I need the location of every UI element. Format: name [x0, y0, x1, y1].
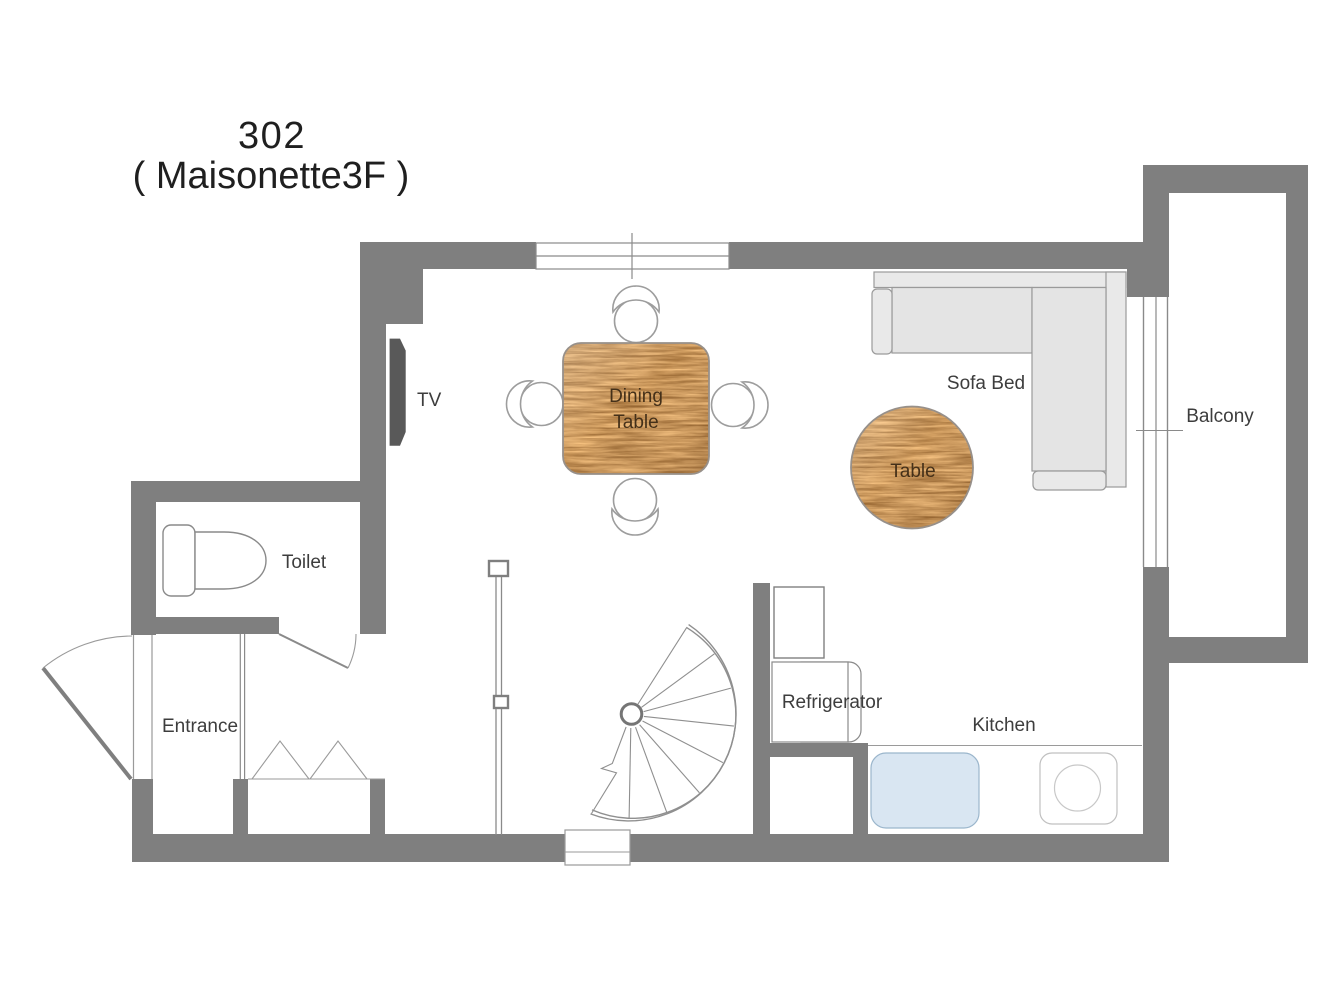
- svg-text:( Maisonette3F ): ( Maisonette3F ): [133, 155, 410, 197]
- svg-text:Table: Table: [613, 412, 658, 433]
- svg-text:Kitchen: Kitchen: [972, 715, 1035, 736]
- svg-text:Sofa Bed: Sofa Bed: [947, 373, 1025, 394]
- svg-text:Refrigerator: Refrigerator: [782, 692, 883, 713]
- svg-text:Table: Table: [890, 461, 935, 482]
- svg-text:Balcony: Balcony: [1186, 406, 1254, 427]
- svg-text:302: 302: [238, 115, 306, 157]
- svg-text:Entrance: Entrance: [162, 716, 238, 737]
- svg-text:Toilet: Toilet: [282, 552, 327, 573]
- svg-text:Dining: Dining: [609, 386, 663, 407]
- svg-text:TV: TV: [417, 390, 442, 411]
